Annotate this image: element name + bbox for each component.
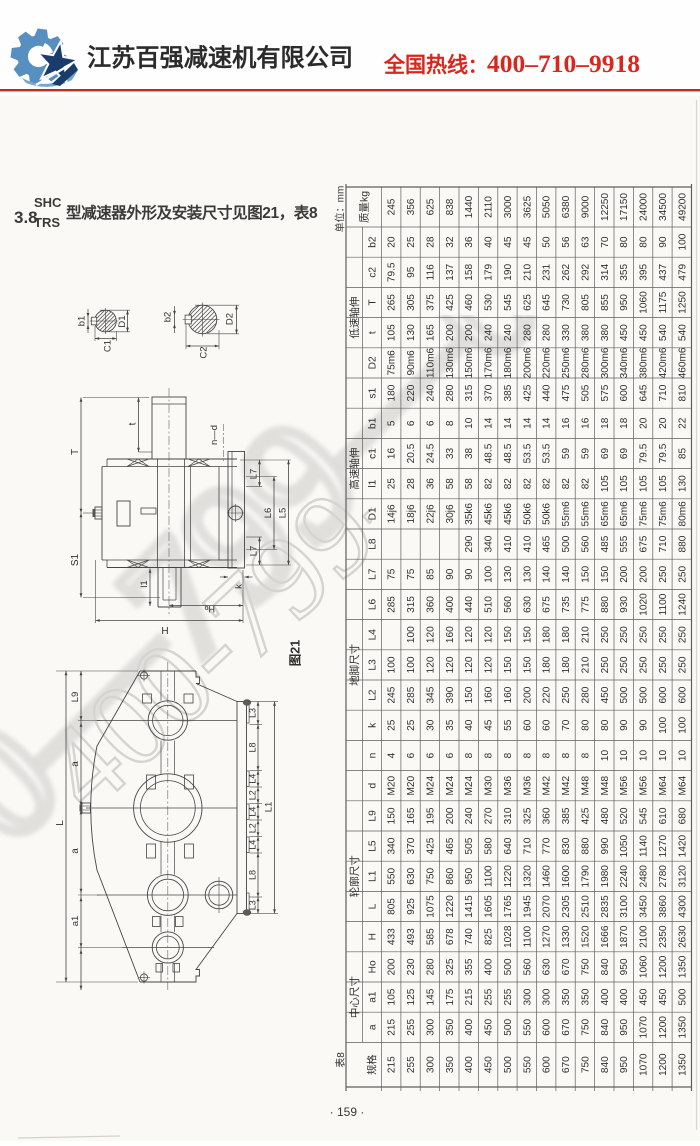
svg-text:60: 60 bbox=[542, 719, 553, 731]
svg-text:215: 215 bbox=[464, 988, 475, 1005]
svg-text:425: 425 bbox=[425, 837, 436, 854]
svg-text:80: 80 bbox=[639, 236, 650, 248]
svg-text:M48: M48 bbox=[580, 775, 591, 795]
svg-text:5: 5 bbox=[387, 420, 398, 426]
svg-text:L2: L2 bbox=[368, 689, 379, 701]
svg-text:80: 80 bbox=[600, 719, 611, 731]
svg-text:840: 840 bbox=[600, 958, 611, 975]
svg-text:2100: 2100 bbox=[639, 925, 650, 948]
svg-text:425: 425 bbox=[580, 807, 591, 824]
svg-text:a: a bbox=[70, 761, 81, 767]
svg-text:145: 145 bbox=[425, 988, 436, 1005]
svg-text:58: 58 bbox=[445, 478, 456, 490]
svg-text:L7: L7 bbox=[248, 469, 259, 480]
svg-text:H: H bbox=[161, 626, 168, 637]
svg-text:325: 325 bbox=[522, 807, 533, 824]
svg-text:C1: C1 bbox=[102, 340, 113, 352]
svg-text:M56: M56 bbox=[619, 775, 630, 795]
svg-text:165: 165 bbox=[425, 324, 436, 341]
svg-text:195: 195 bbox=[425, 807, 436, 824]
svg-text:40: 40 bbox=[464, 719, 475, 731]
svg-text:75m6: 75m6 bbox=[639, 501, 650, 527]
svg-text:550: 550 bbox=[522, 1056, 533, 1073]
svg-text:625: 625 bbox=[425, 198, 436, 215]
svg-text:460: 460 bbox=[464, 294, 475, 311]
svg-text:2510: 2510 bbox=[580, 895, 591, 918]
svg-text:M36: M36 bbox=[522, 775, 533, 795]
svg-text:420m6: 420m6 bbox=[658, 347, 669, 378]
svg-text:14: 14 bbox=[484, 417, 495, 429]
svg-text:150: 150 bbox=[580, 565, 591, 582]
svg-text:L5: L5 bbox=[277, 508, 288, 519]
svg-text:L7: L7 bbox=[368, 568, 379, 580]
svg-text:400: 400 bbox=[484, 958, 495, 975]
svg-text:130: 130 bbox=[406, 324, 417, 341]
svg-text:10: 10 bbox=[639, 750, 650, 762]
svg-text:L6: L6 bbox=[263, 508, 274, 519]
svg-text:1100: 1100 bbox=[484, 865, 495, 887]
svg-text:300: 300 bbox=[522, 988, 533, 1005]
svg-text:805: 805 bbox=[580, 294, 591, 311]
svg-text:265: 265 bbox=[387, 294, 398, 311]
svg-text:75m6: 75m6 bbox=[387, 350, 398, 376]
svg-text:330: 330 bbox=[561, 324, 572, 341]
svg-text:中心尺寸: 中心尺寸 bbox=[348, 976, 361, 1018]
svg-text:560: 560 bbox=[522, 958, 533, 975]
svg-text:280: 280 bbox=[445, 384, 456, 401]
svg-text:730: 730 bbox=[561, 294, 572, 311]
svg-text:440: 440 bbox=[464, 596, 475, 613]
svg-text:575: 575 bbox=[600, 384, 611, 401]
svg-text:b2: b2 bbox=[162, 312, 173, 323]
svg-text:280: 280 bbox=[522, 324, 533, 341]
svg-text:215: 215 bbox=[387, 1018, 398, 1035]
svg-text:630: 630 bbox=[406, 867, 417, 884]
svg-text:105: 105 bbox=[639, 475, 650, 492]
svg-text:670: 670 bbox=[561, 1018, 572, 1035]
svg-text:36: 36 bbox=[425, 478, 436, 490]
svg-text:82: 82 bbox=[580, 478, 591, 490]
svg-text:140: 140 bbox=[542, 565, 553, 582]
svg-text:675: 675 bbox=[542, 596, 553, 613]
svg-text:505: 505 bbox=[464, 837, 475, 854]
svg-text:b1: b1 bbox=[76, 316, 87, 327]
svg-text:1200: 1200 bbox=[658, 1053, 669, 1076]
svg-text:45: 45 bbox=[522, 236, 533, 248]
svg-text:2070: 2070 bbox=[542, 895, 553, 918]
svg-text:545: 545 bbox=[503, 294, 514, 311]
svg-text:735: 735 bbox=[561, 596, 572, 613]
svg-text:8: 8 bbox=[522, 752, 533, 758]
svg-text:L4: L4 bbox=[368, 629, 379, 641]
svg-text:14j6: 14j6 bbox=[387, 504, 398, 523]
svg-text:95: 95 bbox=[406, 266, 417, 278]
svg-text:450: 450 bbox=[639, 324, 650, 341]
svg-text:a: a bbox=[70, 848, 81, 854]
svg-text:2630: 2630 bbox=[677, 925, 688, 948]
svg-text:630: 630 bbox=[522, 596, 533, 613]
svg-text:s1: s1 bbox=[368, 387, 379, 398]
svg-text:400: 400 bbox=[464, 1018, 475, 1035]
svg-text:50: 50 bbox=[542, 236, 553, 248]
svg-text:880: 880 bbox=[580, 837, 591, 854]
svg-text:t: t bbox=[368, 331, 379, 334]
svg-text:55m6: 55m6 bbox=[580, 501, 591, 527]
svg-text:250: 250 bbox=[677, 565, 688, 582]
svg-text:100: 100 bbox=[484, 565, 495, 582]
svg-text:600: 600 bbox=[619, 384, 630, 401]
svg-text:585: 585 bbox=[425, 928, 436, 945]
svg-text:840: 840 bbox=[600, 1018, 611, 1035]
svg-text:L4: L4 bbox=[248, 807, 258, 817]
svg-text:8: 8 bbox=[503, 752, 514, 758]
svg-text:770: 770 bbox=[542, 837, 553, 854]
svg-text:120: 120 bbox=[425, 626, 436, 643]
svg-text:20: 20 bbox=[658, 417, 669, 429]
svg-text:82: 82 bbox=[542, 478, 553, 490]
svg-text:质量kg: 质量kg bbox=[359, 191, 371, 223]
svg-text:625: 625 bbox=[522, 294, 533, 311]
svg-text:c1: c1 bbox=[368, 448, 379, 459]
svg-text:437: 437 bbox=[658, 263, 669, 280]
svg-text:380m6: 380m6 bbox=[639, 347, 650, 378]
svg-text:160: 160 bbox=[445, 626, 456, 643]
svg-text:410: 410 bbox=[522, 535, 533, 552]
svg-text:750: 750 bbox=[580, 1018, 591, 1035]
svg-text:245: 245 bbox=[387, 198, 398, 215]
svg-text:540: 540 bbox=[658, 324, 669, 341]
svg-text:1140: 1140 bbox=[639, 835, 650, 857]
svg-text:380: 380 bbox=[580, 324, 591, 341]
svg-text:179: 179 bbox=[484, 263, 495, 280]
svg-text:2240: 2240 bbox=[619, 865, 630, 888]
svg-text:120: 120 bbox=[445, 656, 456, 673]
svg-text:165: 165 bbox=[406, 807, 417, 824]
svg-text:245: 245 bbox=[387, 686, 398, 703]
svg-text:a1: a1 bbox=[70, 916, 81, 927]
svg-text:380: 380 bbox=[600, 324, 611, 341]
svg-text:200: 200 bbox=[522, 686, 533, 703]
svg-text:1075: 1075 bbox=[425, 895, 436, 918]
svg-text:950: 950 bbox=[619, 1018, 630, 1035]
svg-text:255: 255 bbox=[484, 988, 495, 1005]
svg-text:a1: a1 bbox=[368, 991, 379, 1003]
svg-text:340: 340 bbox=[387, 837, 398, 854]
svg-text:48.5: 48.5 bbox=[503, 443, 514, 463]
svg-text:200: 200 bbox=[387, 958, 398, 975]
svg-text:16: 16 bbox=[580, 417, 591, 429]
svg-text:410: 410 bbox=[503, 535, 514, 552]
svg-text:2780: 2780 bbox=[658, 865, 669, 888]
svg-text:105: 105 bbox=[387, 988, 398, 1005]
svg-text:200: 200 bbox=[464, 324, 475, 341]
svg-text:24000: 24000 bbox=[639, 193, 650, 221]
svg-text:1220: 1220 bbox=[503, 865, 514, 888]
svg-text:262: 262 bbox=[561, 263, 572, 280]
svg-text:315: 315 bbox=[406, 596, 417, 613]
svg-text:450: 450 bbox=[658, 988, 669, 1005]
svg-text:轮廓尺寸: 轮廓尺寸 bbox=[348, 855, 361, 897]
svg-text:8: 8 bbox=[580, 752, 591, 758]
svg-text:500: 500 bbox=[503, 1056, 514, 1073]
svg-text:360: 360 bbox=[425, 596, 436, 613]
svg-text:500: 500 bbox=[503, 958, 514, 975]
svg-text:810: 810 bbox=[677, 384, 688, 401]
svg-text:6: 6 bbox=[445, 752, 456, 758]
svg-text:630: 630 bbox=[542, 958, 553, 975]
svg-text:485: 485 bbox=[600, 535, 611, 552]
svg-text:1050: 1050 bbox=[619, 834, 630, 857]
svg-text:1060: 1060 bbox=[639, 291, 650, 314]
svg-text:500: 500 bbox=[677, 988, 688, 1005]
svg-text:1200: 1200 bbox=[658, 955, 669, 978]
svg-text:1350: 1350 bbox=[677, 955, 688, 978]
svg-text:10: 10 bbox=[619, 750, 630, 762]
svg-text:120: 120 bbox=[484, 626, 495, 643]
svg-text:18: 18 bbox=[600, 417, 611, 429]
svg-text:137: 137 bbox=[445, 263, 456, 280]
svg-text:180: 180 bbox=[561, 656, 572, 673]
svg-text:16: 16 bbox=[387, 448, 398, 460]
svg-text:82: 82 bbox=[561, 478, 572, 490]
svg-text:930: 930 bbox=[619, 596, 630, 613]
svg-text:130: 130 bbox=[677, 475, 688, 492]
svg-text:L6: L6 bbox=[368, 599, 379, 611]
svg-text:45: 45 bbox=[503, 236, 514, 248]
svg-text:30: 30 bbox=[425, 719, 436, 731]
svg-text:t: t bbox=[128, 422, 139, 425]
svg-text:80: 80 bbox=[619, 236, 630, 248]
svg-text:90: 90 bbox=[464, 568, 475, 580]
svg-text:825: 825 bbox=[484, 928, 495, 945]
svg-text:1100: 1100 bbox=[522, 925, 533, 947]
svg-text:400: 400 bbox=[464, 1056, 475, 1073]
svg-text:180: 180 bbox=[542, 626, 553, 643]
svg-text:L8: L8 bbox=[368, 538, 379, 550]
svg-text:710: 710 bbox=[522, 837, 533, 854]
svg-text:950: 950 bbox=[619, 958, 630, 975]
svg-text:530: 530 bbox=[484, 294, 495, 311]
svg-text:TRS: TRS bbox=[34, 215, 60, 230]
svg-text:270: 270 bbox=[484, 807, 495, 824]
svg-text:1070: 1070 bbox=[639, 1053, 650, 1076]
svg-text:1028: 1028 bbox=[503, 925, 514, 948]
svg-text:160: 160 bbox=[503, 686, 514, 703]
svg-text:180m6: 180m6 bbox=[503, 347, 514, 378]
svg-text:855: 855 bbox=[600, 294, 611, 311]
svg-text:L4: L4 bbox=[248, 840, 258, 850]
svg-text:105: 105 bbox=[387, 324, 398, 341]
svg-text:90: 90 bbox=[445, 568, 456, 580]
svg-text:100: 100 bbox=[677, 716, 688, 733]
svg-text:150: 150 bbox=[522, 656, 533, 673]
svg-text:16: 16 bbox=[561, 417, 572, 429]
svg-text:3450: 3450 bbox=[639, 895, 650, 918]
svg-text:370: 370 bbox=[484, 384, 495, 401]
svg-text:59: 59 bbox=[561, 448, 572, 460]
svg-text:8: 8 bbox=[484, 752, 495, 758]
svg-text:150: 150 bbox=[387, 807, 398, 824]
svg-text:355: 355 bbox=[619, 263, 630, 280]
svg-text:L7: L7 bbox=[248, 546, 259, 557]
svg-text:500: 500 bbox=[561, 535, 572, 552]
svg-text:130: 130 bbox=[522, 565, 533, 582]
svg-text:250: 250 bbox=[561, 686, 572, 703]
svg-text:105: 105 bbox=[600, 475, 611, 492]
svg-text:880: 880 bbox=[677, 535, 688, 552]
svg-text:860: 860 bbox=[445, 867, 456, 884]
svg-text:300m6: 300m6 bbox=[600, 347, 611, 378]
svg-text:425: 425 bbox=[522, 384, 533, 401]
svg-text:250: 250 bbox=[639, 656, 650, 673]
svg-text:2835: 2835 bbox=[600, 895, 611, 918]
svg-text:1765: 1765 bbox=[503, 895, 514, 918]
svg-text:350: 350 bbox=[445, 1056, 456, 1073]
svg-text:240: 240 bbox=[503, 324, 514, 341]
svg-text:53.5: 53.5 bbox=[522, 443, 533, 463]
svg-text:17150: 17150 bbox=[619, 193, 630, 221]
svg-text:79.5: 79.5 bbox=[639, 443, 650, 463]
svg-text:28: 28 bbox=[406, 478, 417, 490]
svg-text:3100: 3100 bbox=[619, 895, 630, 918]
svg-text:69: 69 bbox=[619, 448, 630, 460]
svg-text:510: 510 bbox=[484, 596, 495, 613]
svg-text:1270: 1270 bbox=[542, 925, 553, 948]
svg-text:45k6: 45k6 bbox=[503, 503, 514, 525]
svg-text:1270: 1270 bbox=[658, 834, 669, 857]
svg-text:a: a bbox=[368, 1024, 379, 1030]
svg-text:C2: C2 bbox=[198, 346, 209, 358]
svg-text:200: 200 bbox=[619, 565, 630, 582]
svg-text:400: 400 bbox=[600, 988, 611, 1005]
svg-text:1945: 1945 bbox=[522, 895, 533, 918]
svg-text:375: 375 bbox=[425, 294, 436, 311]
svg-text:70: 70 bbox=[600, 236, 611, 248]
svg-text:300: 300 bbox=[542, 988, 553, 1005]
svg-text:450: 450 bbox=[484, 1018, 495, 1035]
svg-text:14: 14 bbox=[542, 417, 553, 429]
svg-text:低速轴伸: 低速轴伸 bbox=[348, 297, 361, 339]
svg-text:150: 150 bbox=[503, 656, 514, 673]
svg-text:710: 710 bbox=[658, 384, 669, 401]
svg-text:433: 433 bbox=[387, 928, 398, 945]
svg-text:3625: 3625 bbox=[522, 195, 533, 218]
svg-text:740: 740 bbox=[464, 928, 475, 945]
svg-text:d: d bbox=[368, 783, 379, 789]
svg-text:285: 285 bbox=[387, 596, 398, 613]
svg-text:1220: 1220 bbox=[445, 895, 456, 918]
svg-text:255: 255 bbox=[406, 1018, 417, 1035]
svg-text:L4: L4 bbox=[248, 774, 258, 784]
svg-text:10: 10 bbox=[464, 417, 475, 429]
svg-text:150m6: 150m6 bbox=[464, 347, 475, 378]
svg-text:· 159 ·: · 159 · bbox=[330, 1105, 365, 1119]
svg-text:M30: M30 bbox=[484, 775, 495, 795]
svg-text:k: k bbox=[233, 584, 244, 589]
svg-text:465: 465 bbox=[542, 535, 553, 552]
svg-text:69: 69 bbox=[600, 448, 611, 460]
svg-text:1460: 1460 bbox=[542, 865, 553, 888]
svg-text:550: 550 bbox=[522, 1018, 533, 1035]
svg-text:63: 63 bbox=[580, 236, 591, 248]
svg-text:M42: M42 bbox=[542, 775, 553, 795]
svg-text:1320: 1320 bbox=[522, 865, 533, 888]
svg-text:25: 25 bbox=[406, 719, 417, 731]
svg-text:38: 38 bbox=[464, 448, 475, 460]
svg-text:105: 105 bbox=[658, 475, 669, 492]
svg-text:475: 475 bbox=[561, 384, 572, 401]
svg-text:59: 59 bbox=[580, 448, 591, 460]
svg-text:120: 120 bbox=[464, 656, 475, 673]
svg-text:32: 32 bbox=[445, 236, 456, 248]
svg-text:305: 305 bbox=[406, 294, 417, 311]
svg-text:6: 6 bbox=[406, 420, 417, 426]
svg-text:85: 85 bbox=[425, 568, 436, 580]
svg-text:65m6: 65m6 bbox=[600, 501, 611, 527]
svg-text:12250: 12250 bbox=[600, 193, 611, 221]
svg-text:b2: b2 bbox=[368, 236, 379, 248]
svg-text:M42: M42 bbox=[561, 775, 572, 795]
svg-text:45k6: 45k6 bbox=[484, 503, 495, 525]
svg-text:20: 20 bbox=[639, 417, 650, 429]
svg-text:1250: 1250 bbox=[677, 291, 688, 314]
svg-text:L3: L3 bbox=[368, 659, 379, 671]
svg-text:L8: L8 bbox=[248, 742, 258, 752]
svg-text:250: 250 bbox=[677, 626, 688, 643]
svg-text:36: 36 bbox=[464, 236, 475, 248]
svg-text:460m6: 460m6 bbox=[677, 347, 688, 378]
svg-text:255: 255 bbox=[406, 1056, 417, 1073]
svg-text:950: 950 bbox=[619, 1056, 630, 1073]
svg-text:120: 120 bbox=[425, 656, 436, 673]
svg-text:3860: 3860 bbox=[658, 895, 669, 918]
svg-text:24.5: 24.5 bbox=[425, 443, 436, 463]
svg-text:395: 395 bbox=[639, 263, 650, 280]
svg-text:240: 240 bbox=[464, 807, 475, 824]
svg-text:500: 500 bbox=[503, 1018, 514, 1035]
svg-text:390: 390 bbox=[445, 686, 456, 703]
svg-text:830: 830 bbox=[561, 837, 572, 854]
svg-text:280: 280 bbox=[580, 686, 591, 703]
svg-text:SHC: SHC bbox=[34, 195, 62, 210]
svg-text:1175: 1175 bbox=[658, 291, 669, 313]
svg-text:M48: M48 bbox=[600, 775, 611, 795]
svg-text:645: 645 bbox=[542, 294, 553, 311]
svg-text:n: n bbox=[368, 753, 379, 759]
svg-text:10: 10 bbox=[658, 750, 669, 762]
svg-text:600: 600 bbox=[677, 686, 688, 703]
svg-text:560: 560 bbox=[503, 596, 514, 613]
svg-text:L1: L1 bbox=[368, 870, 379, 882]
svg-text:385: 385 bbox=[503, 384, 514, 401]
svg-text:江苏百强减速机有限公司: 江苏百强减速机有限公司 bbox=[87, 45, 353, 72]
svg-text:210: 210 bbox=[580, 626, 591, 643]
svg-text:1100: 1100 bbox=[658, 593, 669, 615]
svg-text:250: 250 bbox=[600, 656, 611, 673]
svg-text:L2: L2 bbox=[248, 790, 258, 800]
svg-text:25: 25 bbox=[387, 478, 398, 490]
svg-text:22: 22 bbox=[677, 417, 688, 429]
svg-text:170m6: 170m6 bbox=[484, 347, 495, 378]
svg-text:18j6: 18j6 bbox=[406, 504, 417, 523]
svg-text:950: 950 bbox=[464, 867, 475, 884]
svg-text:450: 450 bbox=[600, 686, 611, 703]
svg-text:30j6: 30j6 bbox=[445, 504, 456, 523]
svg-text:250m6: 250m6 bbox=[561, 347, 572, 378]
svg-text:L2: L2 bbox=[248, 823, 258, 833]
svg-text:20: 20 bbox=[387, 236, 398, 248]
svg-text:1020: 1020 bbox=[639, 593, 650, 616]
